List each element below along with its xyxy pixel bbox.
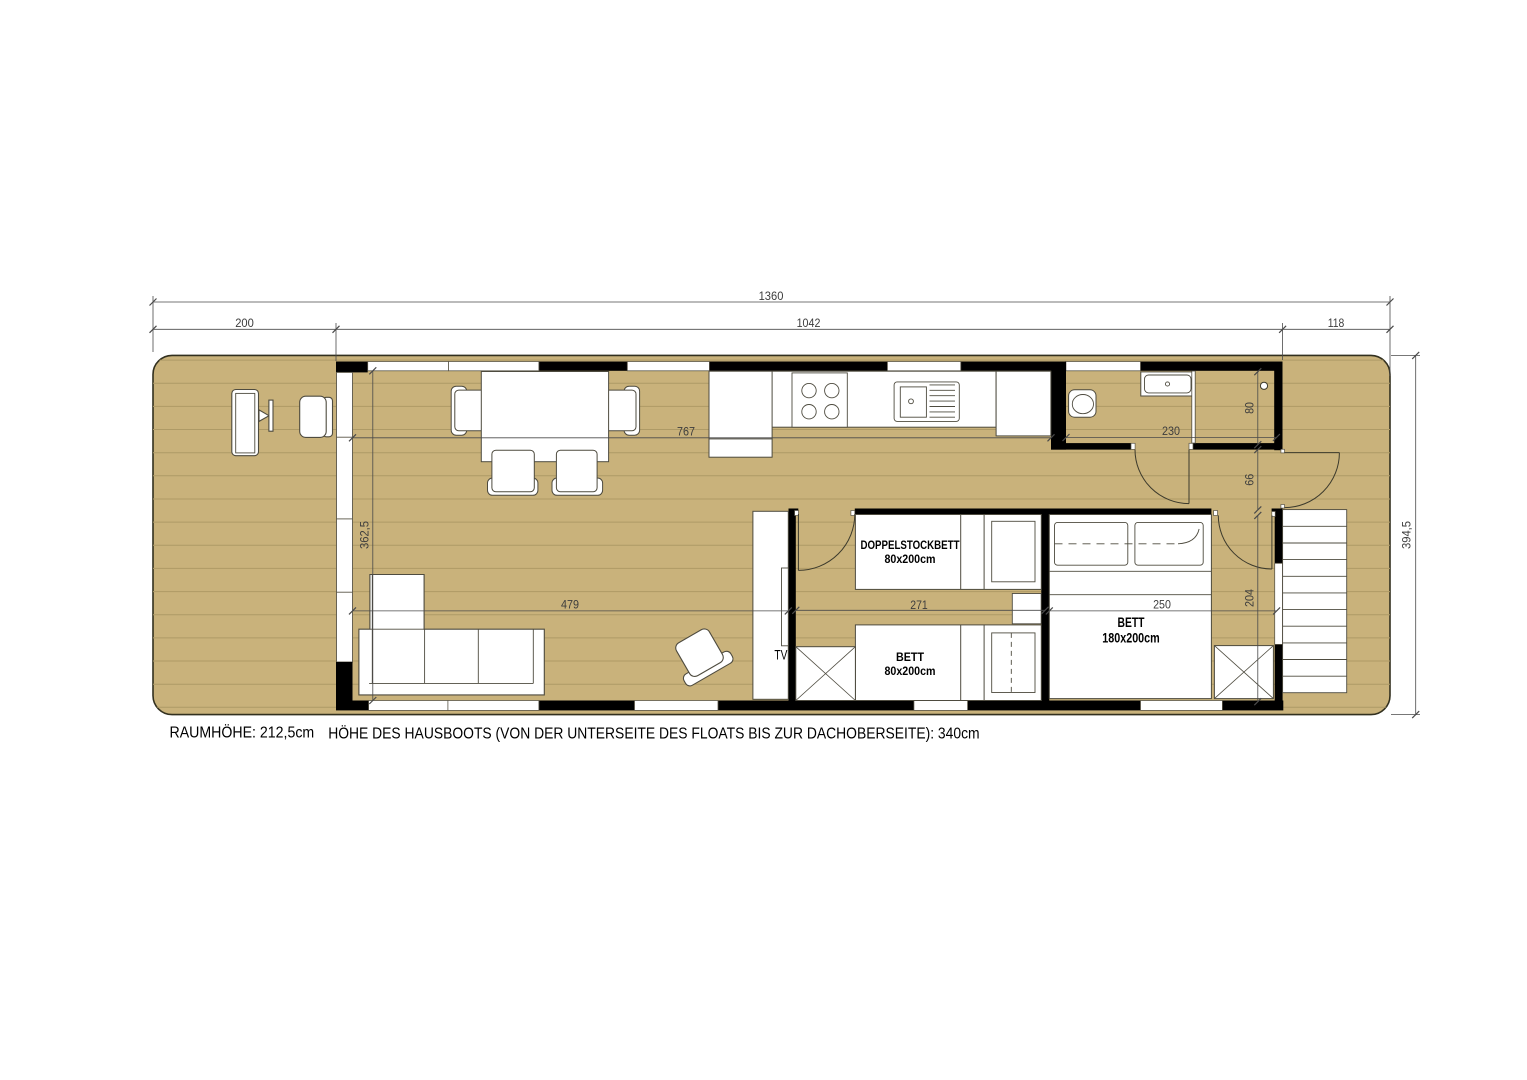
svg-text:204: 204 [1243, 589, 1257, 607]
svg-text:BETT: BETT [896, 650, 925, 664]
svg-text:394,5: 394,5 [1400, 521, 1414, 549]
svg-text:479: 479 [561, 597, 579, 611]
svg-text:DOPPELSTOCKBETT: DOPPELSTOCKBETT [861, 538, 961, 552]
svg-text:1360: 1360 [759, 289, 784, 303]
svg-text:271: 271 [910, 598, 928, 612]
svg-text:200: 200 [235, 316, 254, 330]
svg-text:180x200cm: 180x200cm [1102, 631, 1160, 646]
svg-text:RAUMHÖHE: 212,5cm: RAUMHÖHE: 212,5cm [170, 724, 315, 742]
svg-text:66: 66 [1243, 474, 1257, 486]
svg-text:80x200cm: 80x200cm [885, 664, 936, 678]
svg-text:TV: TV [774, 648, 787, 663]
svg-text:250: 250 [1153, 597, 1171, 611]
svg-text:BETT: BETT [1118, 615, 1146, 630]
svg-text:1042: 1042 [797, 316, 821, 330]
svg-text:118: 118 [1328, 316, 1345, 330]
svg-text:230: 230 [1162, 424, 1180, 438]
svg-text:362,5: 362,5 [358, 521, 372, 549]
svg-text:80x200cm: 80x200cm [885, 552, 936, 566]
svg-text:767: 767 [677, 424, 695, 438]
svg-text:80: 80 [1243, 402, 1257, 414]
svg-text:HÖHE DES HAUSBOOTS (VON DER UN: HÖHE DES HAUSBOOTS (VON DER UNTERSEITE D… [328, 725, 979, 743]
